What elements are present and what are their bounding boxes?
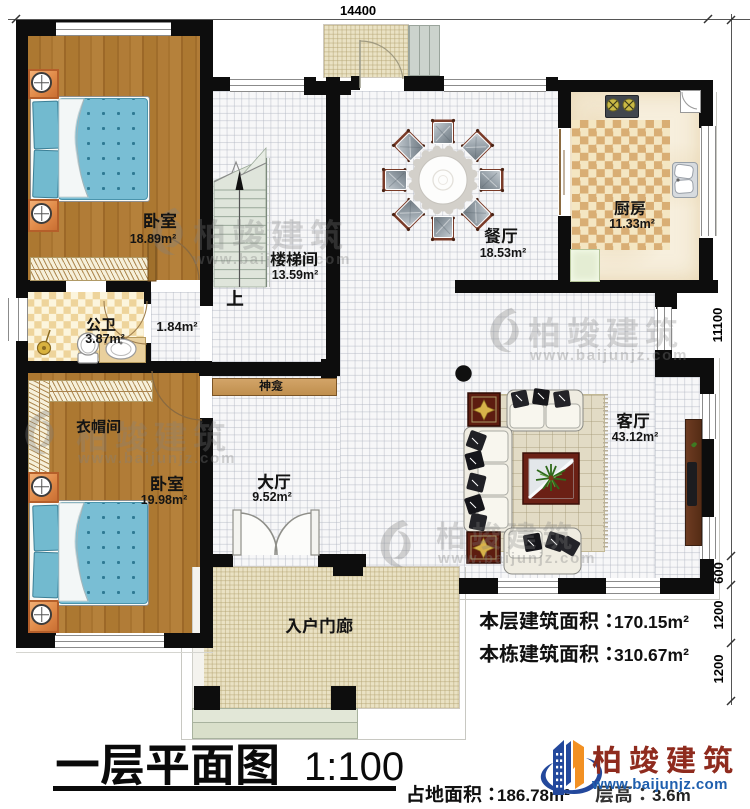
- svg-text:19.98m²: 19.98m²: [141, 493, 188, 507]
- svg-text:www.baijunjz.com: www.baijunjz.com: [591, 776, 728, 793]
- svg-text:170.15m²: 170.15m²: [614, 612, 689, 632]
- svg-text:11100: 11100: [710, 308, 725, 343]
- svg-text:11.33m²: 11.33m²: [609, 217, 655, 231]
- svg-text:310.67m²: 310.67m²: [614, 645, 689, 665]
- svg-text:1:100: 1:100: [304, 745, 404, 789]
- svg-text:1.84m²: 1.84m²: [156, 319, 198, 334]
- svg-text:600: 600: [711, 562, 726, 584]
- svg-text:9.52m²: 9.52m²: [252, 490, 292, 504]
- svg-text:18.53m²: 18.53m²: [480, 246, 527, 260]
- svg-text:www.baijunjz.com: www.baijunjz.com: [437, 550, 596, 567]
- svg-text:1200: 1200: [711, 601, 726, 630]
- svg-text:1200: 1200: [711, 655, 726, 684]
- svg-text:18.89m²: 18.89m²: [130, 232, 177, 246]
- svg-text:www.baijunjz.com: www.baijunjz.com: [77, 450, 236, 467]
- svg-text:13.59m²: 13.59m²: [272, 268, 319, 282]
- svg-text:3.87m²: 3.87m²: [85, 332, 125, 346]
- svg-text:www.baijunjz.com: www.baijunjz.com: [529, 347, 688, 364]
- svg-text:43.12m²: 43.12m²: [612, 430, 659, 444]
